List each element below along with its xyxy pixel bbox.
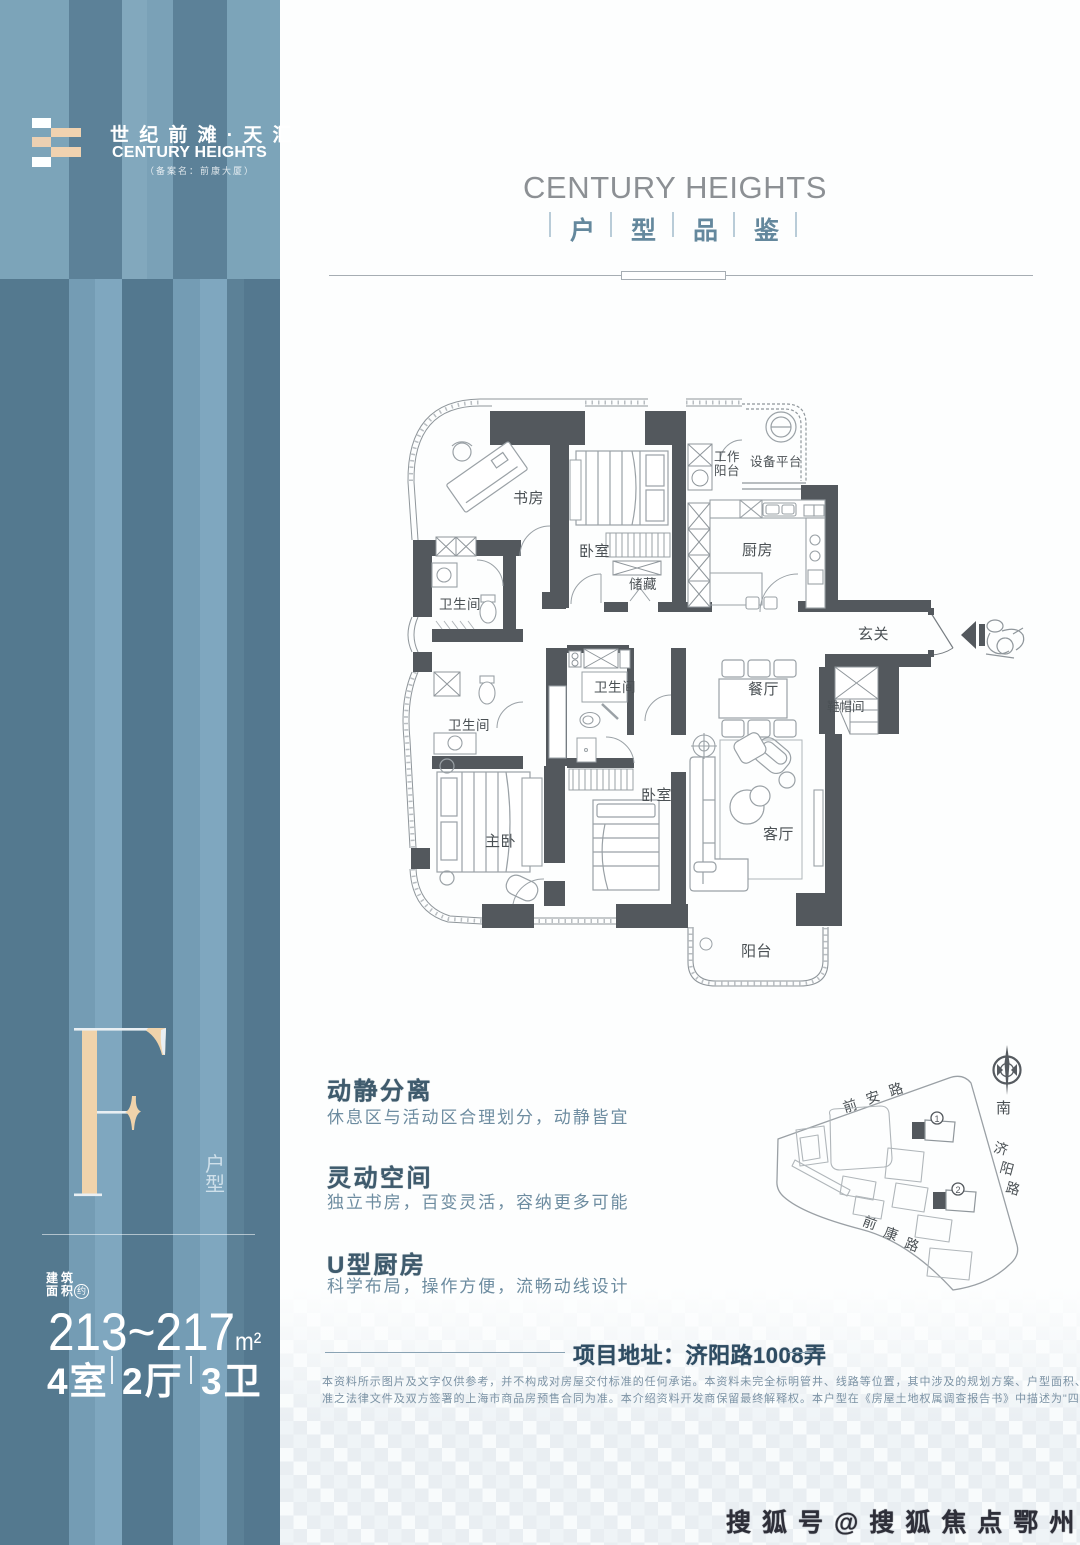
svg-text:1: 1 — [935, 1114, 940, 1124]
svg-text:主卧: 主卧 — [485, 833, 516, 850]
svg-text:前: 前 — [841, 1096, 859, 1116]
svg-text:厨房: 厨房 — [742, 542, 773, 559]
svg-text:工作: 工作 — [714, 450, 740, 464]
svg-text:路: 路 — [1004, 1179, 1022, 1198]
svg-text:卧室: 卧室 — [579, 543, 610, 560]
svg-text:安: 安 — [864, 1088, 882, 1108]
svg-text:卫生间: 卫生间 — [448, 718, 490, 733]
svg-text:康: 康 — [882, 1224, 901, 1244]
svg-text:鞋帽间: 鞋帽间 — [827, 699, 865, 714]
svg-text:储藏: 储藏 — [629, 577, 657, 592]
svg-text:阳台: 阳台 — [714, 463, 740, 478]
svg-text:设备平台: 设备平台 — [750, 454, 802, 469]
svg-text:玄关: 玄关 — [858, 626, 889, 643]
svg-text:书房: 书房 — [513, 490, 544, 507]
svg-text:路: 路 — [887, 1080, 905, 1100]
svg-text:阳台: 阳台 — [741, 943, 772, 960]
svg-text:南: 南 — [996, 1100, 1011, 1117]
svg-text:济: 济 — [992, 1139, 1010, 1158]
svg-text:2: 2 — [956, 1185, 961, 1195]
svg-text:卫生间: 卫生间 — [439, 597, 481, 612]
svg-text:卧室: 卧室 — [641, 787, 672, 804]
svg-text:客厅: 客厅 — [763, 826, 794, 843]
svg-text:餐厅: 餐厅 — [748, 681, 779, 698]
svg-text:阳: 阳 — [998, 1159, 1016, 1178]
svg-text:卫生间: 卫生间 — [594, 680, 636, 695]
